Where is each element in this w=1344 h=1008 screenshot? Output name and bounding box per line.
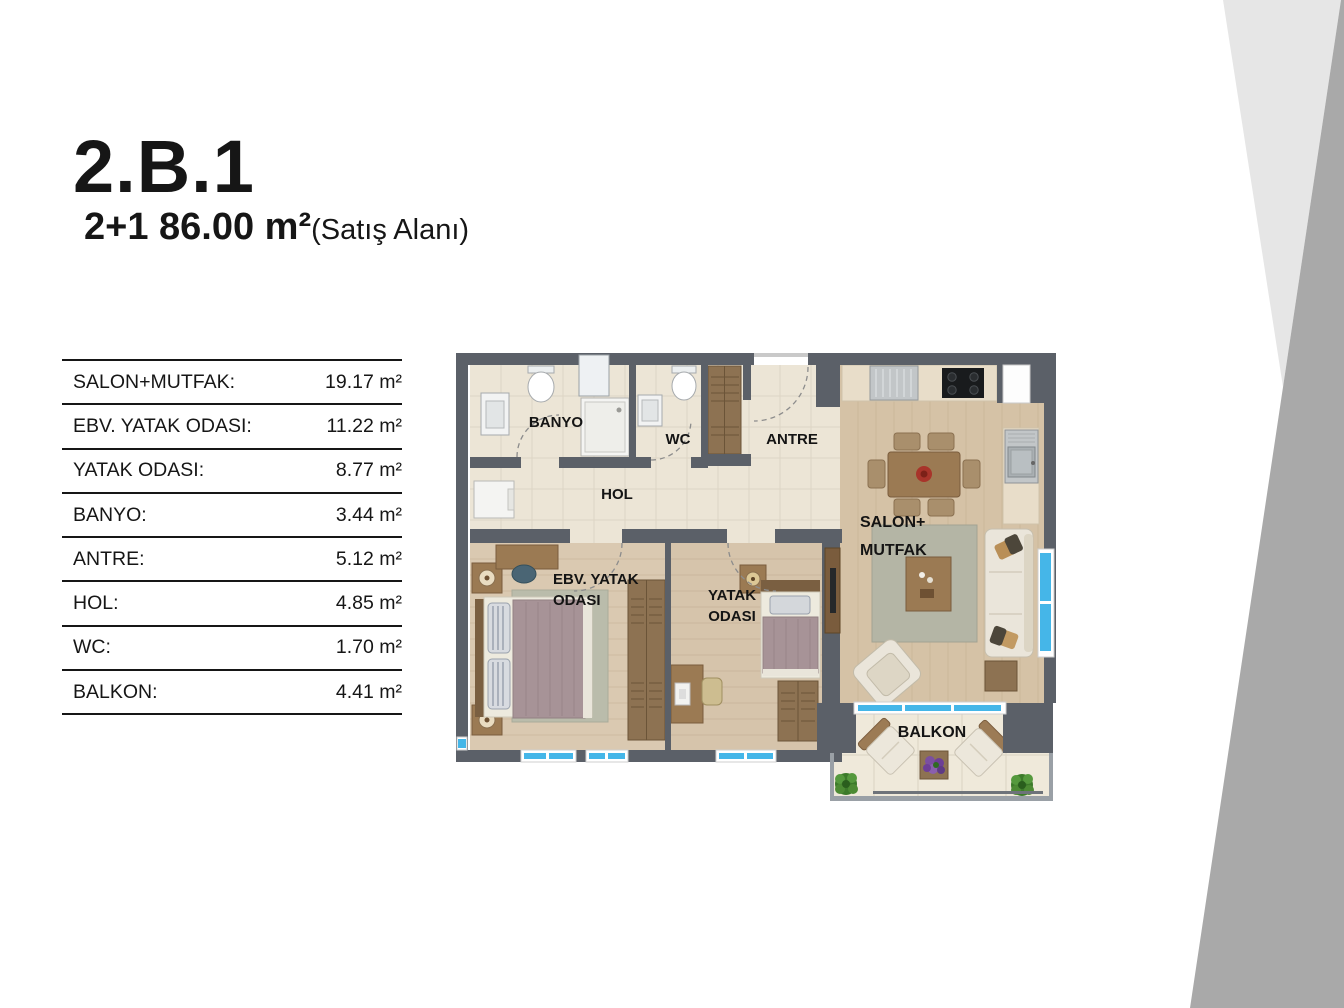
label-wc: WC (666, 431, 691, 448)
entrance-threshold (754, 353, 808, 357)
headboard (761, 580, 820, 592)
wall (743, 365, 751, 400)
table-decor (919, 572, 925, 578)
table-row: WC: 1.70 m² (62, 625, 402, 669)
row-label: BALKON: (73, 681, 158, 704)
area-table: SALON+MUTFAK: 19.17 m² EBV. YATAK ODASI:… (62, 359, 402, 715)
wall (997, 365, 1003, 403)
wall (816, 365, 840, 407)
window-glass (954, 705, 1001, 711)
row-label: HOL: (73, 592, 119, 615)
window-glass (858, 705, 902, 711)
parapet (830, 796, 1053, 801)
window-glass (1040, 553, 1051, 601)
sheet-edge (583, 600, 592, 718)
label-ebv-2: ODASI (553, 592, 601, 609)
burner (970, 386, 978, 394)
table-row: EBV. YATAK ODASI: 11.22 m² (62, 403, 402, 447)
wall (708, 454, 751, 466)
label-antre: ANTRE (766, 431, 818, 448)
row-value: 8.77 m² (336, 459, 402, 482)
burner (970, 373, 978, 381)
wall-hol (622, 529, 727, 543)
parapet (1049, 753, 1053, 798)
wall-bottom (576, 750, 586, 762)
burner (948, 386, 956, 394)
wall-divider (665, 543, 671, 750)
parapet (830, 753, 834, 798)
railing (873, 791, 1043, 794)
kitchen-niche (1003, 365, 1030, 403)
chair (894, 433, 920, 450)
wall-top-right (808, 353, 1056, 365)
chair (928, 433, 954, 450)
faucet (1031, 461, 1035, 465)
table-row: HOL: 4.85 m² (62, 580, 402, 624)
unit-spec-area: 2+1 86.00 m² (84, 206, 311, 248)
laptop-screen (679, 689, 686, 699)
label-yatak-1: YATAK (708, 587, 756, 604)
pillow (488, 659, 510, 709)
sofa-backrest (1024, 534, 1033, 652)
window-glass (458, 739, 466, 748)
stove (942, 368, 984, 398)
chair (928, 499, 954, 516)
green-plant (835, 773, 858, 795)
shower-glass (579, 355, 609, 396)
label-banyo: BANYO (529, 414, 584, 431)
row-value: 5.12 m² (336, 548, 402, 571)
unit-spec-note: (Satış Alanı) (311, 214, 469, 246)
window-mullion (744, 752, 747, 760)
wall (636, 457, 651, 468)
window-mullion (605, 752, 608, 760)
table-row: BALKON: 4.41 m² (62, 669, 402, 713)
entry-closet (708, 366, 741, 454)
table-row: BANYO: 3.44 m² (62, 492, 402, 536)
label-hol: HOL (601, 486, 633, 503)
lamp-center (485, 576, 490, 581)
label-yatak-2: ODASI (708, 608, 756, 625)
row-value: 4.85 m² (336, 592, 402, 615)
wc-sink-basin (642, 400, 658, 421)
pillow (488, 603, 510, 653)
wc-toilet (672, 372, 696, 400)
pillow (770, 596, 810, 614)
row-label: ANTRE: (73, 548, 145, 571)
label-salon-1: SALON+ (860, 514, 925, 531)
desk-chair (512, 565, 536, 583)
sink-basin (486, 401, 504, 428)
row-label: WC: (73, 636, 111, 659)
row-value: 4.41 m² (336, 681, 402, 704)
row-value: 11.22 m² (326, 415, 402, 438)
wall-left (456, 365, 468, 750)
row-label: BANYO: (73, 504, 147, 527)
hol-cabinet (474, 481, 514, 518)
shower-drain (617, 408, 622, 413)
row-label: SALON+MUTFAK: (73, 371, 235, 394)
wall (629, 365, 636, 457)
page: 2.B.1 2+1 86.00 m²(Satış Alanı) SALON+MU… (0, 0, 1344, 1008)
unit-spec: 2+1 86.00 m²(Satış Alanı) (84, 206, 469, 249)
label-salon-2: MUTFAK (860, 542, 927, 559)
toilet (528, 372, 554, 402)
cabinet-handle (508, 489, 514, 510)
chair (868, 460, 885, 488)
tv (830, 568, 836, 613)
wall-hol (775, 529, 842, 543)
burner (948, 373, 956, 381)
wall (470, 457, 521, 468)
lamp-center (485, 718, 490, 723)
tv-panel (825, 548, 840, 633)
wall (701, 365, 708, 466)
wall (559, 457, 636, 468)
label-balkon: BALKON (898, 724, 966, 741)
table-row: ANTRE: 5.12 m² (62, 536, 402, 580)
wall-bottom (628, 750, 716, 762)
wall-balcony-stub (1003, 703, 1053, 753)
window-glass (1040, 604, 1051, 651)
kitchen-sink-basin (1011, 450, 1032, 474)
wall-hol (470, 529, 570, 543)
floorplan: BANYO WC ANTRE HOL SALON+ MUTFAK EBV. YA… (456, 353, 1056, 808)
table-decor (920, 589, 934, 598)
unit-code-title: 2.B.1 (73, 130, 255, 204)
table-decor (927, 577, 933, 583)
window-glass (905, 705, 951, 711)
centerpiece-center (921, 471, 928, 478)
side-table (985, 661, 1017, 691)
desk-chair (702, 678, 722, 705)
row-label: YATAK ODASI: (73, 459, 204, 482)
lamp-center (751, 577, 755, 581)
table-row: YATAK ODASI: 8.77 m² (62, 448, 402, 492)
table-row: SALON+MUTFAK: 19.17 m² (62, 359, 402, 403)
label-ebv-1: EBV. YATAK (553, 571, 639, 588)
sheet-edge (763, 669, 818, 676)
headboard (475, 599, 484, 717)
wall-balcony-stub (817, 703, 856, 753)
chair (963, 460, 980, 488)
coffee-table (906, 557, 951, 611)
window-mullion (546, 752, 549, 760)
row-label: EBV. YATAK ODASI: (73, 415, 252, 438)
row-value: 19.17 m² (325, 371, 402, 394)
wall-bottom (456, 750, 521, 762)
row-value: 3.44 m² (336, 504, 402, 527)
row-value: 1.70 m² (336, 636, 402, 659)
